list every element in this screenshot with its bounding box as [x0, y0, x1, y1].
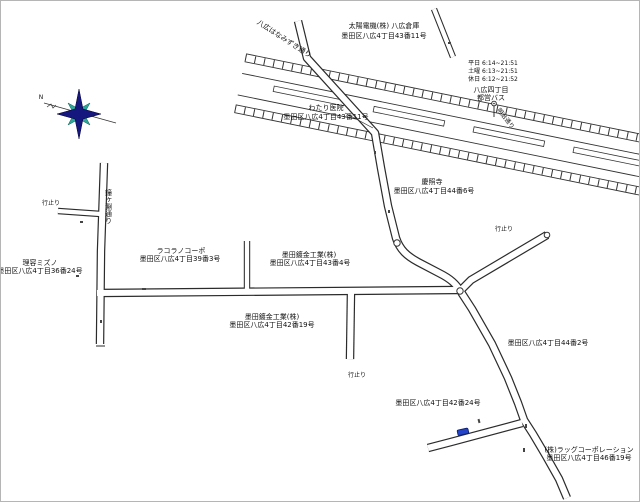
bus-schedule-saturday: 土曜 6:13~21:51: [468, 68, 518, 76]
poi-address-sumida-mekki-1: 墨田区八広4丁目43番4号: [270, 259, 351, 267]
poi-address-temple: 墨田区八広4丁目44番6号: [394, 187, 475, 195]
bus-stop-name: 八広四丁目: [474, 86, 509, 94]
avenue-band: [234, 54, 640, 199]
poi-name-corpo: ラコラノコーポ: [157, 247, 206, 255]
compass-rose-icon: [44, 89, 116, 139]
poi-name-taiyo: 太陽電機(株) 八広倉庫: [349, 22, 420, 30]
dead-end-label-mid: 行止り: [348, 372, 366, 380]
junction-circle: [394, 240, 400, 246]
poi-name-rug-corp: (株)ラッグコーポレーション: [544, 446, 633, 454]
dead-end-label-west: 行止り: [42, 200, 60, 208]
route-map: 八広はなみずき通り 太陽電機(株) 八広倉庫 墨田区八広4丁目43番11号 平日…: [0, 0, 640, 502]
poi-address-barber: 墨田区八広4丁目36番24号: [0, 267, 83, 275]
dead-end-label-east: 行止り: [495, 226, 513, 234]
poi-address-sumida-mekki-2: 墨田区八広4丁目42番19号: [229, 321, 314, 329]
address-label-42-24: 墨田区八広4丁目42番24号: [395, 399, 480, 407]
bus-schedule-holiday: 休日 6:12~21:52: [468, 76, 518, 84]
poi-name-temple: 慶照寺: [422, 178, 443, 186]
bus-stop-operator: 都営バス: [477, 94, 505, 102]
poi-address-watari: 墨田区八広4丁目43番11号: [283, 113, 368, 121]
poi-name-barber: 理容ミズノ: [23, 259, 58, 267]
poi-name-sumida-mekki-2: 墨田鍍金工業(株): [245, 313, 299, 321]
bus-schedule-weekday: 平日 6:14~21:51: [468, 60, 518, 68]
street-label-north-south: 鐘ヶ淵通り: [104, 189, 113, 224]
poi-name-sumida-mekki-1: 墨田鍍金工業(株): [282, 251, 336, 259]
junction-circle: [544, 232, 550, 238]
poi-address-corpo: 墨田区八広4丁目39番3号: [140, 255, 221, 263]
poi-address-taiyo: 墨田区八広4丁目43番11号: [341, 32, 426, 40]
poi-address-rug-corp: 墨田区八広4丁目46番19号: [546, 454, 631, 462]
compass-north-label: N: [39, 94, 44, 102]
address-label-44-2: 墨田区八広4丁目44番2号: [508, 339, 589, 347]
junction-circle: [457, 288, 463, 294]
poi-name-watari: わたり医院: [309, 104, 344, 112]
